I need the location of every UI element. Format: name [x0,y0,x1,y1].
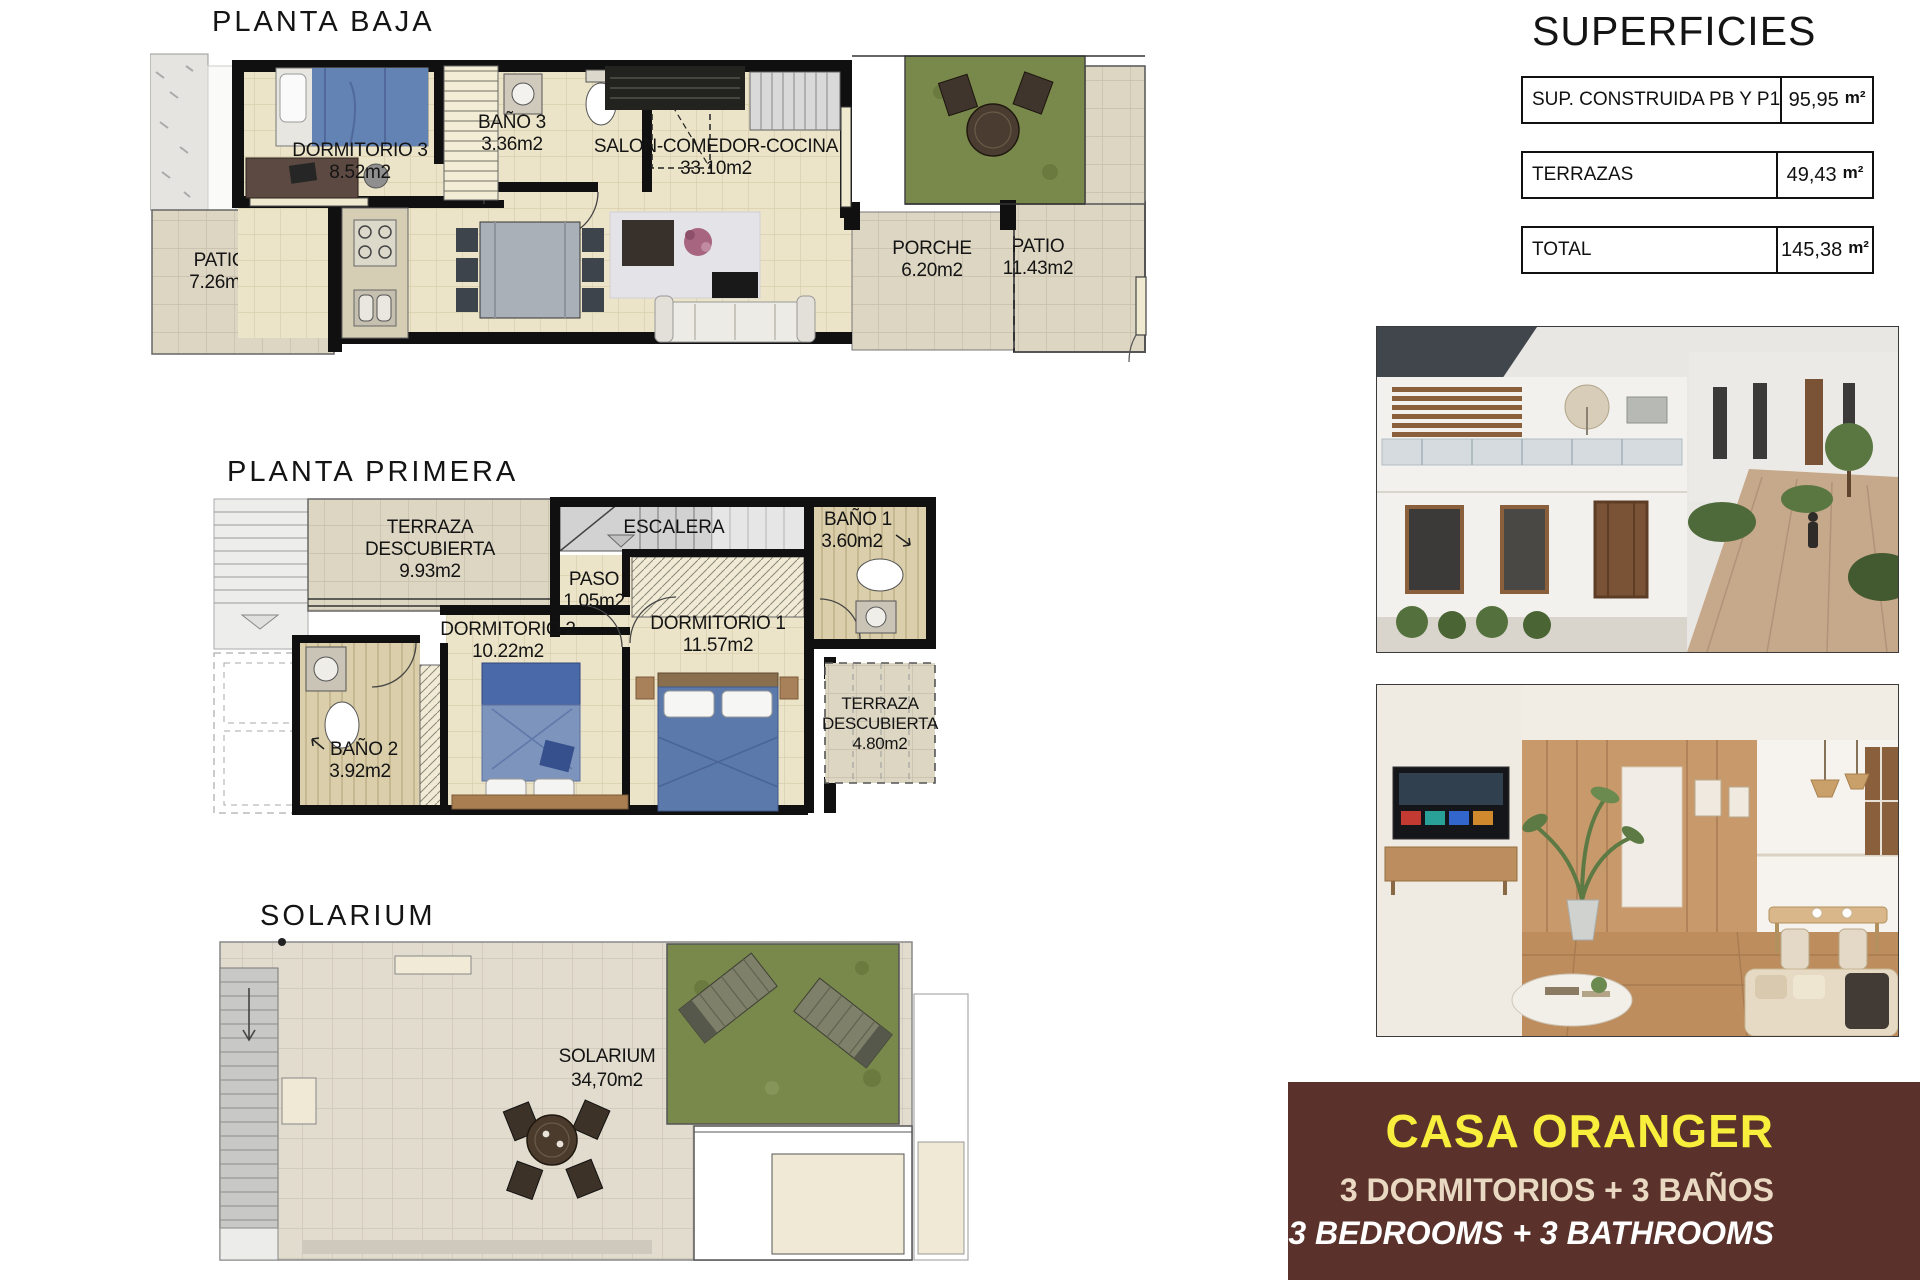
room-area: 9.93m2 [399,561,461,582]
planter [282,1078,316,1124]
room-label: PORCHE [892,238,972,259]
coffee-table [1512,974,1632,1026]
grass-patio [905,56,1085,204]
person-silhouette [1808,512,1818,548]
room-label: ESCALERA [623,517,725,538]
vent-post [278,938,286,946]
property-banner: CASA ORANGER 3 DORMITORIOS + 3 BAÑOS 3 B… [1288,1082,1920,1280]
bed-double [636,673,798,811]
room-label: DESCUBIERTA [365,539,496,560]
row-label: TERRAZAS [1523,153,1776,197]
room-porche: PORCHE 6.20m2 [852,212,1014,350]
planta-primera-title: PLANTA PRIMERA [227,456,518,489]
row-value: 95,95m² [1780,78,1872,122]
property-name: CASA ORANGER [1288,1104,1774,1158]
street-perspective [1687,352,1899,652]
skylight [395,956,471,974]
room-label: PASO [569,569,619,590]
dining-table [1769,907,1887,923]
roof-sofa [1627,397,1667,423]
table-row: TOTAL 145,38m² [1521,226,1874,274]
room-label: SALON-COMEDOR-COCINA [594,136,839,157]
planta-baja-floorplan: PATIO 7.26m2 PORCHE 6.20m2 PATIO 11.43m2 [150,52,1150,362]
room-area: 8.52m2 [329,162,391,183]
row-value: 49,43m² [1776,153,1872,197]
stairs [750,72,840,130]
room-label: DORMITORIO 3 [292,140,427,161]
unit: m² [1848,238,1869,258]
superficies-table: SUP. CONSTRUIDA PB Y P1 95,95m² TERRAZAS… [1521,76,1874,301]
wall-frame [1695,780,1721,816]
kitchen-cabinets [605,66,745,110]
grass-area [667,944,899,1124]
door-leaf [1136,277,1146,335]
toilet [857,559,903,591]
room-label: SOLARIUM [559,1046,656,1067]
value: 49,43 [1787,164,1837,187]
room-label: BAÑO 1 [824,508,892,530]
room-paso: PASO 1.05m2 [563,569,625,612]
wardrobe [632,557,804,617]
property-subtitle-es: 3 DORMITORIOS + 3 BAÑOS [1288,1172,1774,1209]
wardrobe [444,66,498,200]
room-label: DORMITORIO 2 [440,619,575,640]
value: 95,95 [1789,89,1839,112]
interior-render-photo [1376,684,1899,1037]
row-label: SUP. CONSTRUIDA PB Y P1 [1523,78,1780,122]
exterior-render-photo [1376,326,1899,653]
sofa [1745,969,1898,1036]
adjacent-structure [914,994,968,1260]
room-label: TERRAZA [387,517,474,538]
room-area: 6.20m2 [901,260,963,281]
throw-blanket [1845,973,1889,1029]
unit: m² [1845,88,1866,108]
tv-wall [1377,685,1522,1036]
tv-console [1385,847,1517,881]
table-row: SUP. CONSTRUIDA PB Y P1 95,95m² [1521,76,1874,124]
unit: m² [1843,163,1864,183]
windows [1407,502,1647,597]
sofa [655,296,815,342]
room-terraza-descubierta-1: TERRAZA DESCUBIERTA 9.93m2 [308,499,556,611]
room-label: DESCUBIERTA [822,714,939,733]
value: 145,38 [1781,239,1842,262]
room-area: 4.80m2 [853,734,908,753]
room-label: BAÑO 3 [478,111,546,133]
stairs [220,968,278,1260]
room-area: 11.57m2 [683,635,753,656]
gravel-strip [150,54,236,210]
room-label: PATIO [1012,236,1065,257]
parapet-shadow [302,1240,652,1254]
row-label: TOTAL [1523,228,1776,272]
sliding-door [841,107,851,207]
room-area: 33.10m2 [680,158,752,179]
room-area: 3.36m2 [481,134,543,155]
wood-bench [452,795,628,809]
room-label: DORMITORIO 1 [650,613,785,634]
solarium-floorplan: SOLARIUM 34,70m2 [212,928,982,1280]
room-area: 3.92m2 [329,761,391,782]
brochure-page: PLANTA BAJA PLANTA PRIMERA SOLARIUM PATI… [0,0,1920,1280]
room-area: 1.05m2 [563,591,625,612]
table-row: TERRAZAS 49,43m² [1521,151,1874,199]
room-area: 10.22m2 [472,641,544,662]
kitchen-counter [342,208,408,338]
planta-baja-title: PLANTA BAJA [212,6,435,39]
property-subtitle-en: 3 BEDROOMS + 3 BATHROOMS [1288,1215,1774,1252]
bed-double [276,68,428,146]
room-area: 34,70m2 [571,1070,643,1091]
exterior-stair [214,499,308,649]
dining-chair [1839,929,1867,969]
room-area: 3.60m2 [821,531,883,552]
row-value: 145,38m² [1776,228,1872,272]
room-label: BAÑO 2 [330,738,398,760]
wall-frame [1729,787,1749,817]
superficies-title: SUPERFICIES [1532,8,1816,55]
dining-chair [1781,929,1809,969]
window-sill [250,198,368,206]
planta-primera-floorplan: TERRAZA DESCUBIERTA 9.93m2 ESCALERA [212,497,967,822]
roof-void [694,1126,912,1260]
glass-balustrade [1382,439,1682,465]
room-terraza-descubierta-2: TERRAZA DESCUBIERTA 4.80m2 [822,663,939,783]
room-label: TERRAZA [841,694,919,713]
